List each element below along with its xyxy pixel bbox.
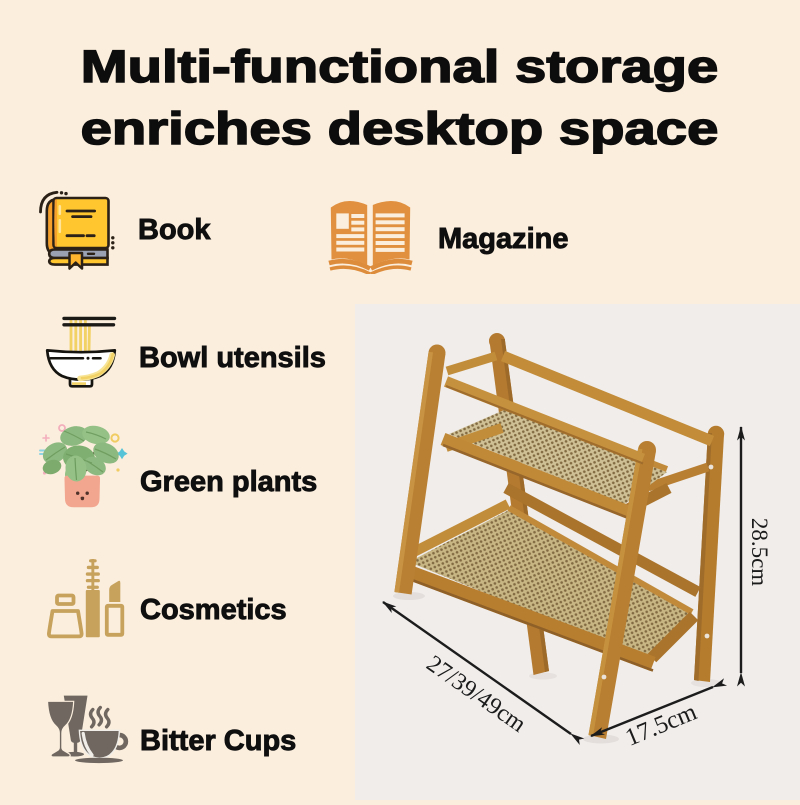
svg-text:17.5cm: 17.5cm: [622, 698, 701, 752]
svg-text:28.5cm: 28.5cm: [747, 518, 772, 586]
